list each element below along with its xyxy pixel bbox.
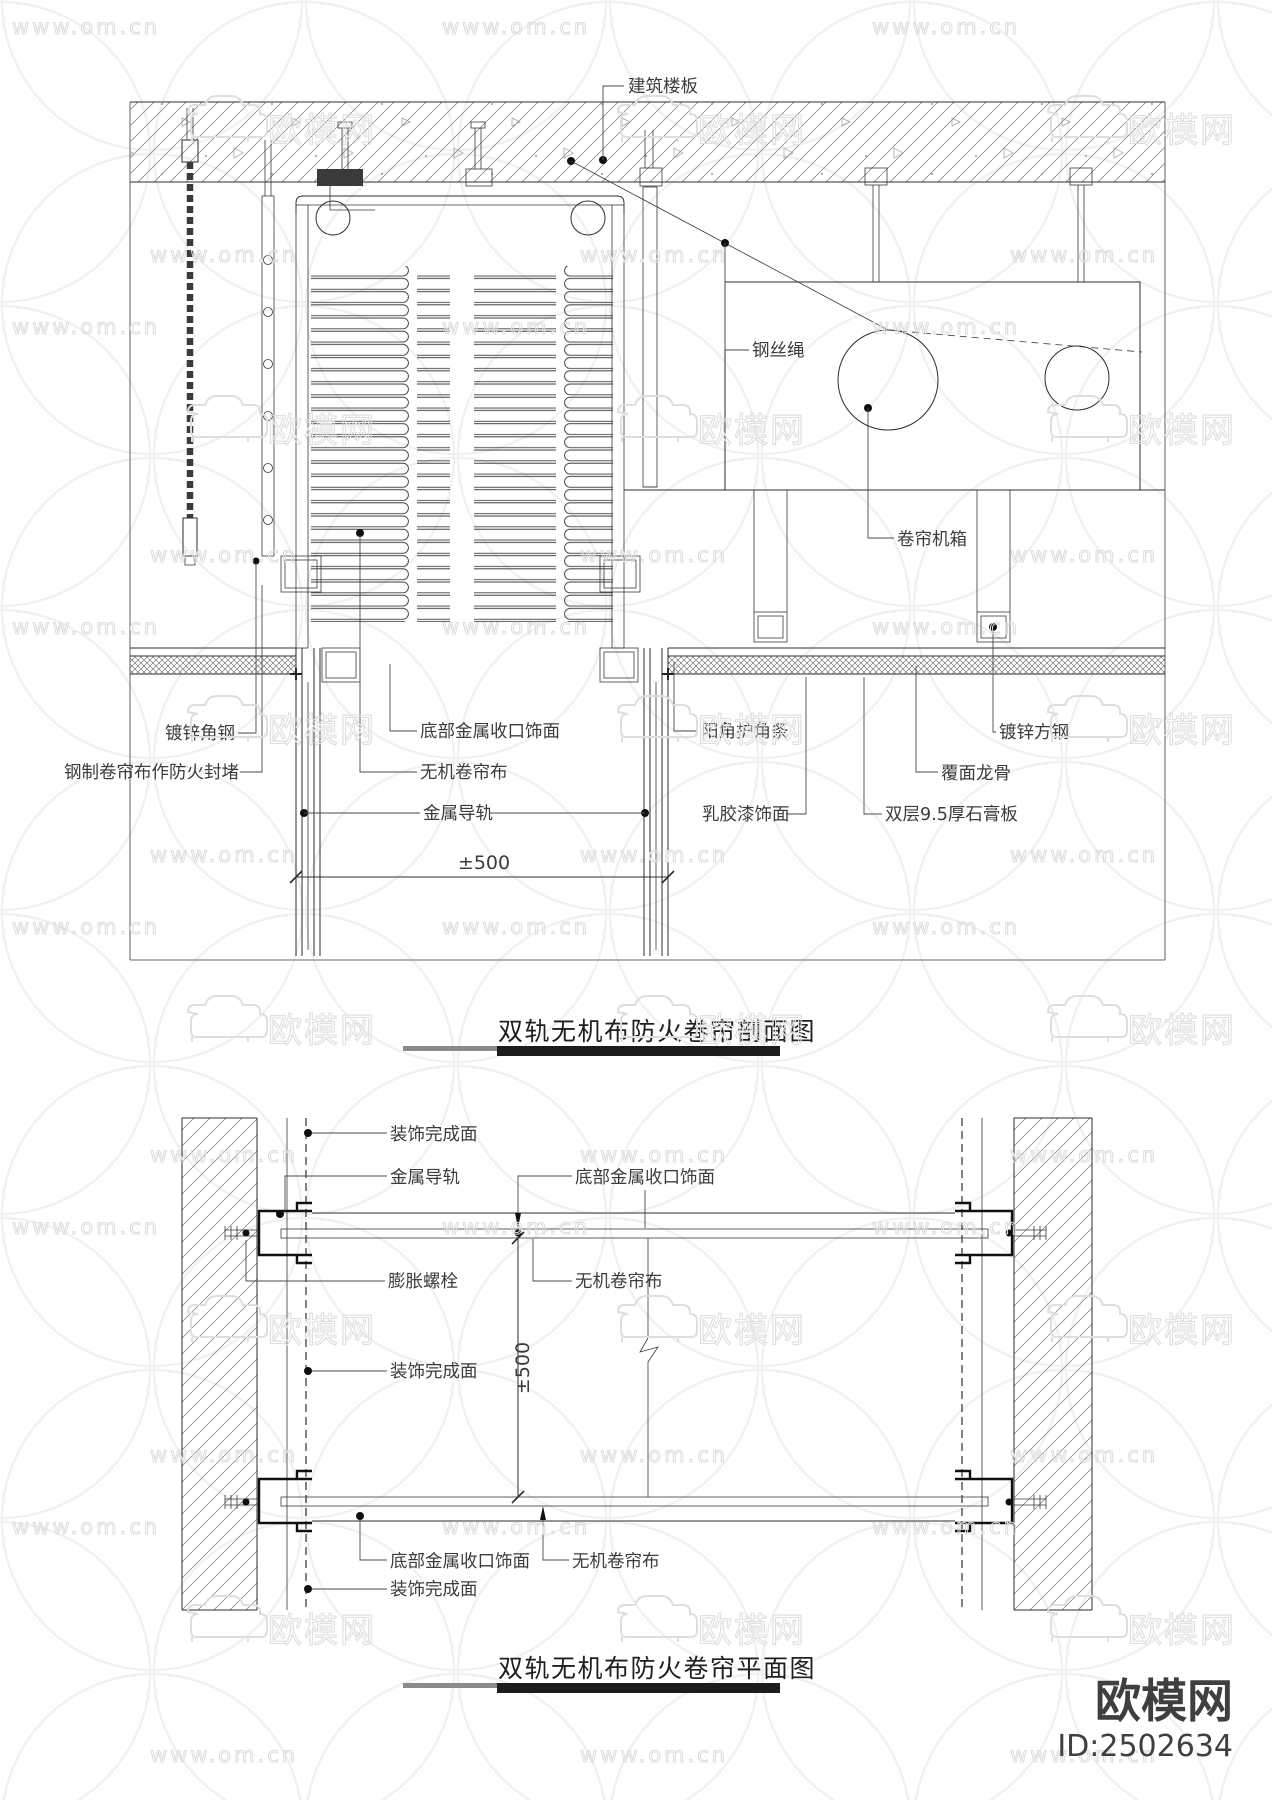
watermark-text-layer: [0, 0, 1272, 1800]
cad-sheet: www.om.cn 欧模网 www.om.cn 建筑楼板: [0, 0, 1272, 1800]
brand-id: ID:2502634: [1057, 1729, 1233, 1764]
brand-name: 欧模网: [1095, 1674, 1233, 1728]
